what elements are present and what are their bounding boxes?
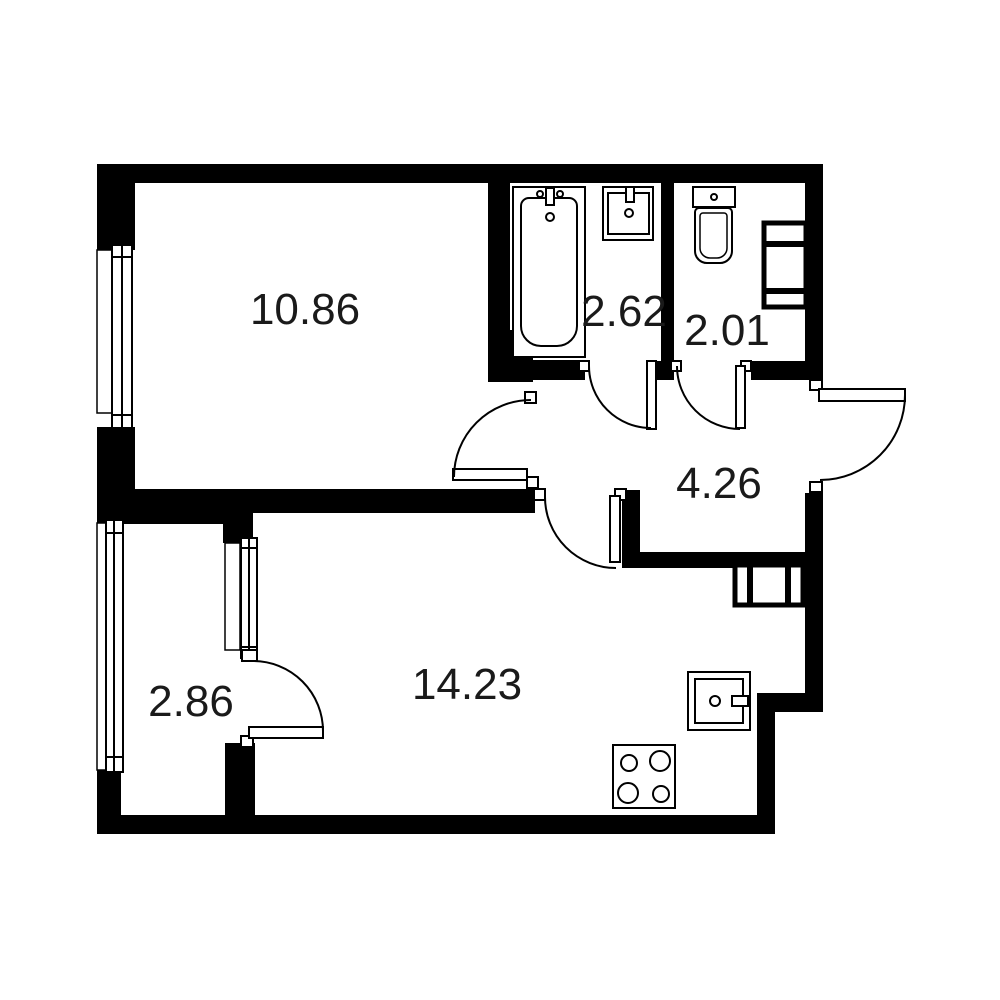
door-frame	[534, 489, 545, 500]
stove-fixture	[613, 745, 675, 808]
wall-room-bottom	[97, 489, 535, 513]
door-swing-arc	[589, 366, 651, 428]
room-area-label-hallway: 4.26	[676, 459, 762, 509]
bathroom-sink-fixture	[603, 187, 653, 240]
entrance-door	[810, 380, 905, 492]
wall-toilet-bottom	[751, 361, 805, 380]
door-swing-arc	[677, 366, 740, 429]
burner-icon	[650, 751, 670, 771]
wall-right-lower	[805, 493, 823, 712]
room-area-label-kitchen: 14.23	[412, 660, 522, 710]
wall-bathroom-bottom	[510, 360, 585, 380]
door-frame	[525, 392, 536, 403]
door-frame	[810, 482, 822, 492]
door-bathroom	[579, 361, 656, 429]
toilet-shaft-radiator	[764, 223, 806, 307]
tub-spout-icon	[546, 188, 554, 205]
toilet-fixture	[693, 187, 735, 263]
floor-plan: 10.86 2.62 2.01 4.26 2.86 14.23	[0, 0, 1000, 1000]
door-kitchen	[534, 489, 626, 568]
door-swing-arc	[454, 400, 531, 477]
door-main-room	[453, 392, 538, 488]
wall-balcony-corner-block	[223, 490, 253, 543]
door-leaf	[610, 496, 620, 562]
door-balcony	[241, 650, 323, 747]
wall-bottom-right-vertical	[757, 712, 775, 834]
door-frame	[579, 361, 589, 371]
bathtub-fixture	[513, 187, 585, 357]
room-area-label-bathroom: 2.62	[581, 287, 667, 337]
door-frame	[527, 477, 538, 488]
wall-balcony-lower	[225, 743, 255, 820]
wall-bottom	[97, 815, 775, 834]
room-area-label-balcony: 2.86	[148, 677, 234, 727]
door-toilet	[671, 361, 751, 429]
door-swing-arc	[545, 497, 616, 568]
door-leaf	[453, 469, 527, 480]
window-balcony-partition	[225, 538, 257, 658]
room-area-label-main: 10.86	[250, 285, 360, 335]
floor-plan-drawing	[0, 0, 1000, 1000]
door-leaf	[819, 389, 905, 401]
kitchen-sink-fixture	[688, 672, 750, 730]
sink-faucet-icon	[732, 696, 748, 706]
wall-top-left-pier	[97, 164, 135, 250]
door-leaf	[647, 361, 656, 429]
burner-icon	[621, 755, 637, 771]
door-swing-arc	[820, 395, 905, 480]
door-leaf	[736, 366, 745, 428]
wall-top	[97, 164, 823, 183]
burner-icon	[618, 783, 638, 803]
room-area-label-toilet: 2.01	[684, 306, 770, 356]
door-swing-arc	[253, 661, 323, 731]
door-frame	[242, 650, 257, 661]
window-room-left	[97, 245, 132, 428]
sink-faucet-icon	[626, 187, 634, 202]
wall-kitchen-door-pier	[622, 490, 640, 568]
window-balcony-left	[97, 520, 123, 772]
burner-icon	[653, 786, 669, 802]
door-leaf	[249, 727, 323, 738]
kitchen-radiator	[735, 565, 803, 605]
